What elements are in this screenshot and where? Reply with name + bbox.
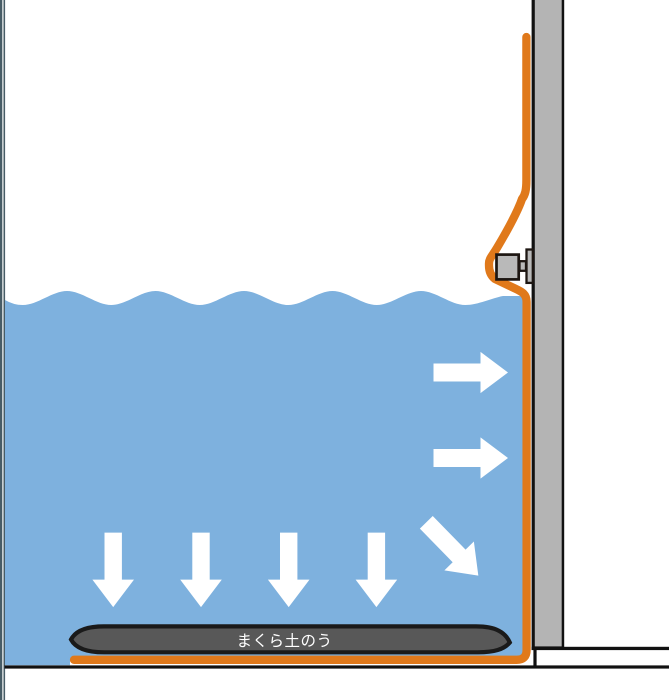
svg-text:まくら土のう: まくら土のう [236,632,332,650]
